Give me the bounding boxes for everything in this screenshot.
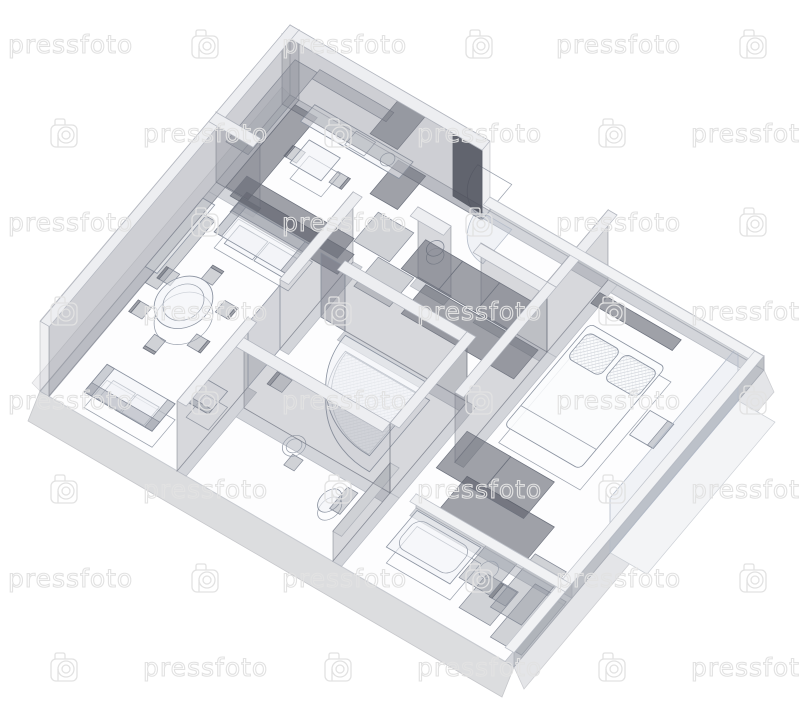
watermark-text: pressfoto: [143, 119, 268, 148]
watermark-text: pressfoto: [417, 475, 542, 504]
watermark-text: pressfoto: [691, 297, 800, 326]
watermark-text: pressfoto: [691, 119, 800, 148]
watermark-text: pressfoto: [8, 208, 133, 237]
watermark-text: pressfoto: [282, 386, 407, 415]
watermark-text: pressfoto: [691, 653, 800, 682]
watermark-text: pressfoto: [143, 653, 268, 682]
watermark-text: pressfoto: [417, 119, 542, 148]
watermark-text: pressfoto: [8, 564, 133, 593]
stock-photo-apartment-render: pressfoto pressfoto pressfoto pressfoto …: [0, 0, 800, 722]
watermark-text: pressfoto: [8, 386, 133, 415]
watermark-text: pressfoto: [691, 475, 800, 504]
watermark-text: pressfoto: [143, 297, 268, 326]
watermark-text: pressfoto: [417, 653, 542, 682]
watermark-text: pressfoto: [282, 564, 407, 593]
watermark-text: pressfoto: [556, 208, 681, 237]
watermark-text: pressfoto: [556, 386, 681, 415]
watermark-text: pressfoto: [282, 208, 407, 237]
watermark-text: pressfoto: [417, 297, 542, 326]
watermark-text: pressfoto: [282, 30, 407, 59]
watermark-text: pressfoto: [143, 475, 268, 504]
watermark-text: pressfoto: [556, 30, 681, 59]
watermark-text: pressfoto: [556, 564, 681, 593]
apartment-wireframe-render: pressfoto pressfoto pressfoto pressfoto …: [0, 0, 800, 722]
watermark-text: pressfoto: [8, 30, 133, 59]
